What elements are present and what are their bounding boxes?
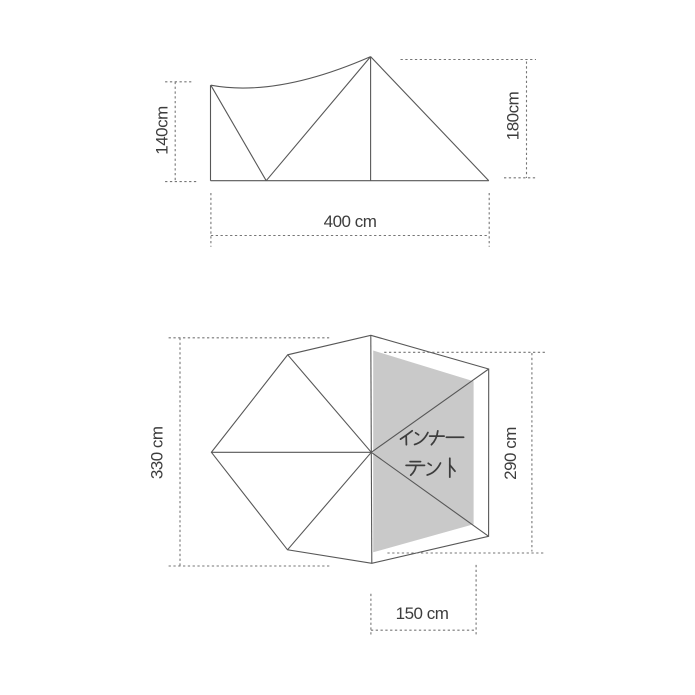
svg-text:150 cm: 150 cm <box>396 604 449 623</box>
svg-text:330 cm: 330 cm <box>148 426 167 479</box>
svg-text:290 cm: 290 cm <box>501 427 520 480</box>
svg-text:180cm: 180cm <box>504 91 523 140</box>
svg-text:140cm: 140cm <box>153 106 172 155</box>
svg-text:400 cm: 400 cm <box>324 212 377 231</box>
